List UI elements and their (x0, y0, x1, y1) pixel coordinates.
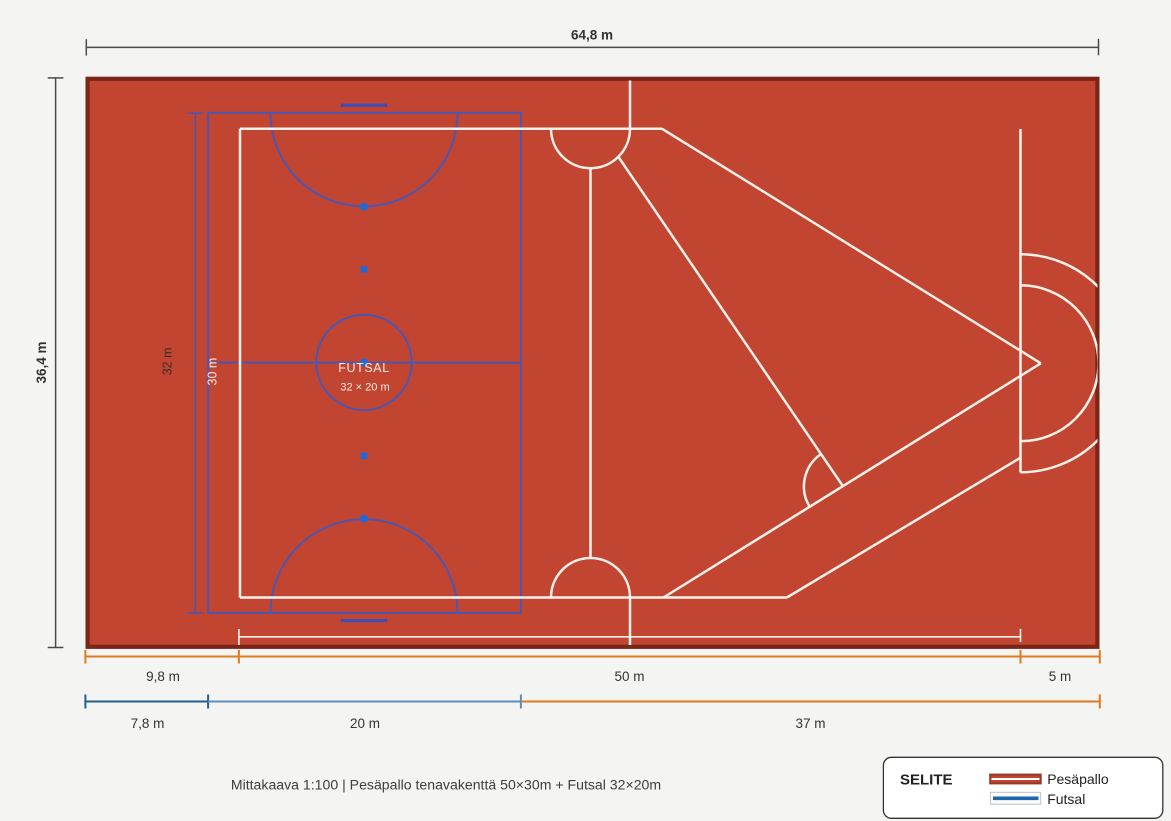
svg-text:36,4 m: 36,4 m (34, 341, 49, 383)
svg-text:32 × 20 m: 32 × 20 m (340, 381, 389, 393)
svg-text:37 m: 37 m (795, 716, 825, 731)
svg-text:FUTSAL: FUTSAL (338, 361, 390, 375)
svg-text:7,8 m: 7,8 m (131, 716, 165, 731)
svg-text:Futsal: Futsal (1047, 791, 1085, 807)
svg-text:Pesäpallo: Pesäpallo (1047, 771, 1109, 787)
svg-text:SELITE: SELITE (900, 771, 953, 788)
svg-text:5 m: 5 m (1049, 669, 1072, 684)
svg-text:64,8 m: 64,8 m (571, 28, 613, 43)
svg-text:50 m: 50 m (614, 669, 644, 684)
svg-text:9,8 m: 9,8 m (146, 669, 180, 684)
svg-text:20 m: 20 m (350, 716, 380, 731)
svg-text:32 m: 32 m (161, 348, 175, 376)
svg-text:Mittakaava 1:100 | Pesäpallo t: Mittakaava 1:100 | Pesäpallo tenavakentt… (231, 777, 661, 793)
svg-text:30 m: 30 m (205, 358, 219, 386)
